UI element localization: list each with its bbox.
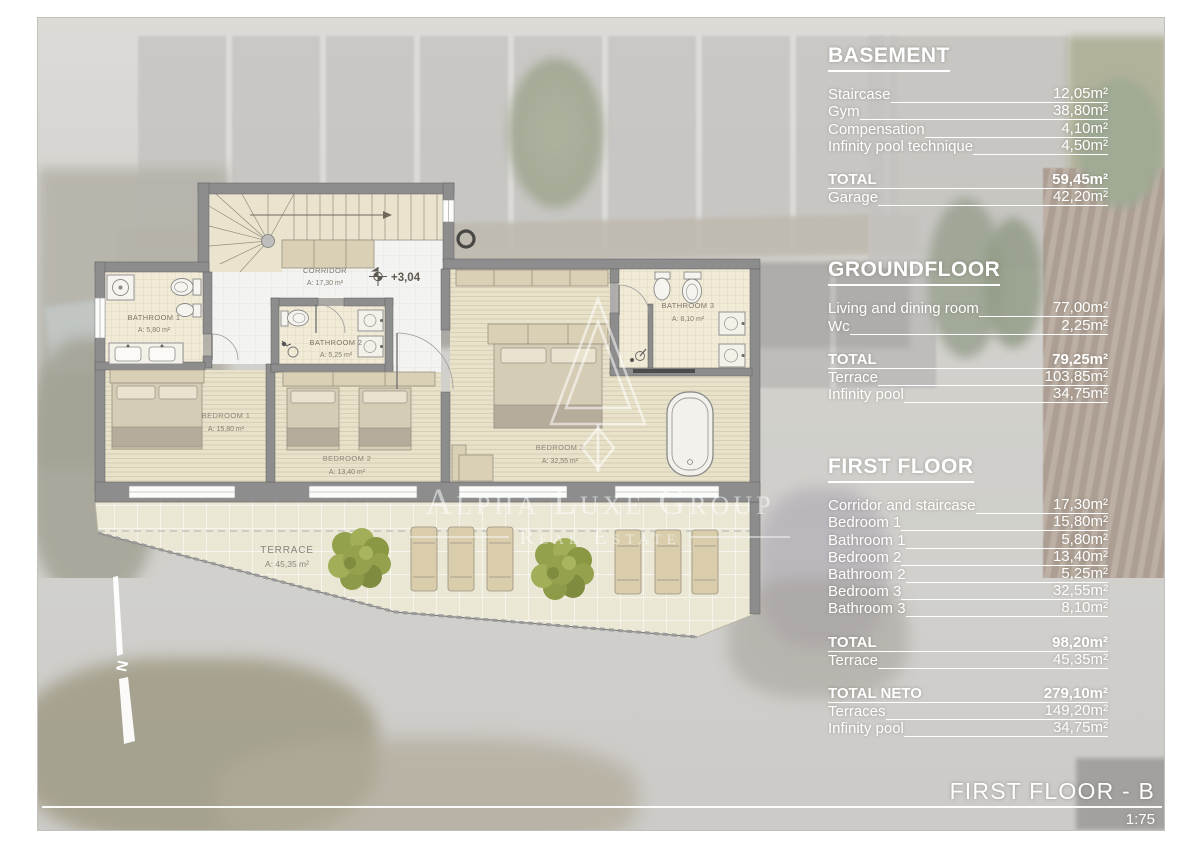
bathtub <box>667 392 713 476</box>
sun-lounger <box>655 530 681 594</box>
window <box>443 200 454 222</box>
wardrobe <box>456 270 608 286</box>
toilet <box>171 279 201 296</box>
schedule-section: FIRST FLOORCorridor and staircase17,30m²… <box>828 455 1108 737</box>
row-leader-line <box>886 719 1045 720</box>
vanity-sinks <box>109 343 183 364</box>
schedule-group: TOTAL59,45m²Garage42,20m² <box>828 172 1108 206</box>
row-label: Infinity pool <box>828 387 904 403</box>
row-value: 34,75m² <box>1053 720 1108 737</box>
schedule-group: Living and dining room77,00m²Wc2,25m² <box>828 300 1108 334</box>
row-leader-line <box>877 188 1053 189</box>
schedule-row: Terrace45,35m² <box>828 652 1108 669</box>
row-value: 32,55m² <box>1053 583 1108 600</box>
drawing-scale: 1:75 <box>42 811 1155 828</box>
sun-lounger <box>448 527 474 591</box>
row-value: 149,20m² <box>1045 703 1108 720</box>
bed <box>488 324 608 428</box>
area-schedule: BASEMENTStaircase12,05m²Gym38,80m²Compen… <box>828 44 1108 789</box>
row-leader-line <box>976 513 1053 514</box>
row-label: Infinity pool <box>828 721 904 737</box>
row-label: Compensation <box>828 122 925 138</box>
room-area-bathroom1: A: 5,80 m² <box>138 327 171 334</box>
row-value: 5,80m² <box>1061 532 1108 549</box>
row-value: 103,85m² <box>1045 369 1108 386</box>
page: +3,04 CORRIDOR A: 17,30 m² BATHROOM 1 A:… <box>0 0 1200 848</box>
room-label-bedroom3: BEDROOM 3 <box>536 443 585 452</box>
row-label: Garage <box>828 190 878 206</box>
row-value: 13,40m² <box>1053 549 1108 566</box>
row-leader-line <box>877 651 1053 652</box>
toilet <box>281 310 309 326</box>
schedule-section: BASEMENTStaircase12,05m²Gym38,80m²Compen… <box>828 44 1108 206</box>
sun-lounger <box>615 530 641 594</box>
schedule-row: Bathroom 25,25m² <box>828 566 1108 583</box>
row-value: 4,10m² <box>1061 121 1108 138</box>
room-area-bathroom3: A: 8,10 m² <box>672 316 705 323</box>
row-value: 12,05m² <box>1053 86 1108 103</box>
bed <box>110 370 204 449</box>
row-label: TOTAL <box>828 635 877 652</box>
row-leader-line <box>979 316 1053 317</box>
schedule-group: TOTAL79,25m²Terrace103,85m²Infinity pool… <box>828 352 1108 404</box>
towel-radiator <box>633 369 695 373</box>
schedule-row: Bedroom 115,80m² <box>828 514 1108 531</box>
row-value: 38,80m² <box>1053 103 1108 120</box>
room-label-bathroom3: BATHROOM 3 <box>661 301 714 310</box>
north-arrow-icon: N <box>113 576 135 744</box>
washing-machine <box>107 275 134 300</box>
row-label: Bathroom 1 <box>828 533 906 549</box>
row-label: Staircase <box>828 87 891 103</box>
window <box>615 486 719 498</box>
room-label-corridor: CORRIDOR <box>303 266 347 275</box>
row-leader-line <box>877 368 1053 369</box>
row-leader-line <box>906 616 1062 617</box>
room-area-bedroom2: A: 13,40 m² <box>329 469 366 476</box>
toilet <box>683 272 702 303</box>
north-label: N <box>113 659 132 673</box>
sink <box>358 310 383 331</box>
row-value: 77,00m² <box>1053 300 1108 317</box>
row-leader-line <box>878 668 1053 669</box>
row-leader-line <box>904 736 1053 737</box>
schedule-row: TOTAL NETO279,10m² <box>828 686 1108 703</box>
row-label: Terraces <box>828 704 886 720</box>
row-label: Bathroom 3 <box>828 601 906 617</box>
room-area-bedroom1: A: 15,80 m² <box>208 426 245 433</box>
schedule-row: Infinity pool technique4,50m² <box>828 138 1108 155</box>
row-label: Infinity pool technique <box>828 139 973 155</box>
schedule-row: Living and dining room77,00m² <box>828 300 1108 317</box>
room-area-corridor: A: 17,30 m² <box>307 280 344 287</box>
row-value: 15,80m² <box>1053 514 1108 531</box>
sun-lounger <box>411 527 437 591</box>
row-value: 59,45m² <box>1052 172 1108 189</box>
row-label: Wc <box>828 319 850 335</box>
row-label: Corridor and staircase <box>828 498 976 514</box>
column-ring <box>458 231 474 247</box>
schedule-row: Bathroom 38,10m² <box>828 600 1108 617</box>
section-heading: FIRST FLOOR <box>828 455 974 483</box>
schedule-row: TOTAL98,20m² <box>828 634 1108 651</box>
schedule-row: Wc2,25m² <box>828 317 1108 334</box>
room-label-bathroom1: BATHROOM 1 <box>127 313 180 322</box>
schedule-row: Infinity pool34,75m² <box>828 720 1108 737</box>
schedule-row: Bedroom 332,55m² <box>828 583 1108 600</box>
row-leader-line <box>850 334 1062 335</box>
window <box>95 298 105 338</box>
row-label: Bedroom 2 <box>828 550 901 566</box>
row-label: Gym <box>828 104 860 120</box>
schedule-row: Infinity pool34,75m² <box>828 386 1108 403</box>
section-heading: BASEMENT <box>828 44 950 72</box>
sink <box>719 312 745 335</box>
schedule-group: TOTAL98,20m²Terrace45,35m² <box>828 634 1108 668</box>
schedule-row: Gym38,80m² <box>828 103 1108 120</box>
row-label: Terrace <box>828 653 878 669</box>
row-leader-line <box>904 402 1053 403</box>
row-leader-line <box>901 530 1053 531</box>
schedule-row: Staircase12,05m² <box>828 86 1108 103</box>
row-label: Bathroom 2 <box>828 567 906 583</box>
row-label: Bedroom 1 <box>828 515 901 531</box>
row-value: 2,25m² <box>1061 318 1108 335</box>
row-label: Living and dining room <box>828 301 979 317</box>
row-value: 98,20m² <box>1052 635 1108 652</box>
row-leader-line <box>906 582 1062 583</box>
schedule-row: Terrace103,85m² <box>828 369 1108 386</box>
schedule-group: Staircase12,05m²Gym38,80m²Compensation4,… <box>828 86 1108 155</box>
room-area-bedroom3: A: 32,55 m² <box>542 458 579 465</box>
schedule-row: TOTAL79,25m² <box>828 352 1108 369</box>
stair-newel <box>262 235 275 248</box>
row-value: 42,20m² <box>1053 189 1108 206</box>
room-area-terrace: A: 45,35 m² <box>265 559 309 569</box>
row-value: 45,35m² <box>1053 652 1108 669</box>
level-marker-value: +3,04 <box>391 272 421 284</box>
window <box>459 486 567 498</box>
row-value: 17,30m² <box>1053 497 1108 514</box>
schedule-row: Garage42,20m² <box>828 189 1108 206</box>
drawing-title: FIRST FLOOR - B <box>42 778 1155 804</box>
sun-lounger <box>692 530 718 594</box>
section-heading: GROUNDFLOOR <box>828 258 1000 286</box>
row-value: 8,10m² <box>1061 600 1108 617</box>
room-label-bedroom1: BEDROOM 1 <box>202 411 251 420</box>
sink <box>719 344 745 367</box>
row-label: TOTAL NETO <box>828 686 922 703</box>
schedule-row: Corridor and staircase17,30m² <box>828 497 1108 514</box>
row-label: TOTAL <box>828 352 877 369</box>
room-area-bathroom2: A: 5,25 m² <box>320 352 353 359</box>
row-leader-line <box>901 599 1053 600</box>
schedule-row: Compensation4,10m² <box>828 120 1108 137</box>
schedule-row: Bedroom 213,40m² <box>828 549 1108 566</box>
schedule-row: Bathroom 15,80m² <box>828 531 1108 548</box>
schedule-section: GROUNDFLOORLiving and dining room77,00m²… <box>828 258 1108 403</box>
schedule-group: TOTAL NETO279,10m²Terraces149,20m²Infini… <box>828 686 1108 738</box>
row-label: Terrace <box>828 370 878 386</box>
understair-cabinet <box>282 240 374 268</box>
row-label: Bedroom 3 <box>828 584 901 600</box>
room-label-bedroom2: BEDROOM 2 <box>323 454 372 463</box>
row-value: 79,25m² <box>1052 352 1108 369</box>
row-value: 4,50m² <box>1061 138 1108 155</box>
title-block: FIRST FLOOR - B 1:75 <box>42 778 1155 828</box>
sun-lounger <box>487 527 513 591</box>
row-value: 34,75m² <box>1053 386 1108 403</box>
row-leader-line <box>973 154 1061 155</box>
room-label-terrace: TERRACE <box>260 545 313 556</box>
room-label-bathroom2: BATHROOM 2 <box>309 338 362 347</box>
row-leader-line <box>878 205 1053 206</box>
row-value: 279,10m² <box>1044 686 1108 703</box>
row-leader-line <box>891 102 1053 103</box>
window <box>129 486 235 498</box>
schedule-group: Corridor and staircase17,30m²Bedroom 115… <box>828 497 1108 617</box>
window <box>309 486 417 498</box>
row-label: TOTAL <box>828 172 877 189</box>
row-leader-line <box>906 548 1062 549</box>
row-leader-line <box>901 565 1053 566</box>
title-divider <box>42 806 1162 808</box>
row-leader-line <box>922 702 1044 703</box>
row-value: 5,25m² <box>1061 566 1108 583</box>
bidet <box>654 272 670 300</box>
schedule-row: TOTAL59,45m² <box>828 172 1108 189</box>
schedule-row: Terraces149,20m² <box>828 703 1108 720</box>
